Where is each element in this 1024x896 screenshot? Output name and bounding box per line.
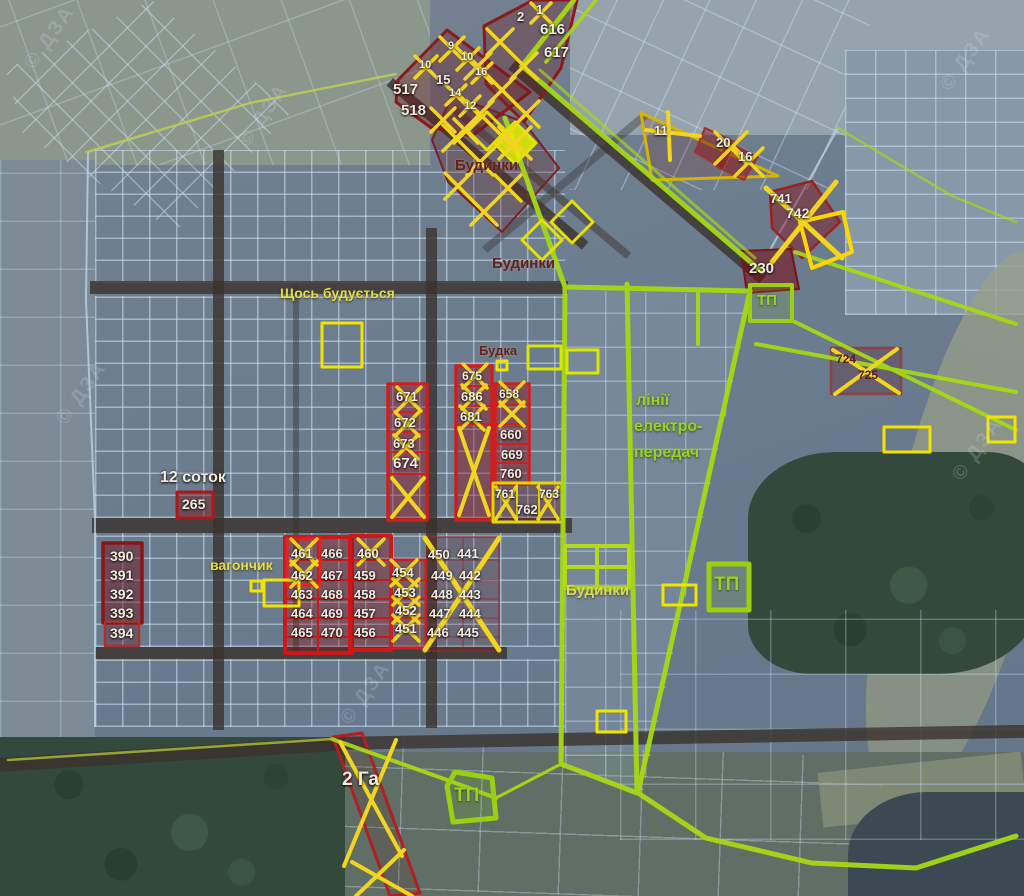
plot-number: 457 xyxy=(354,607,376,620)
plot-number: 445 xyxy=(457,626,479,639)
plot-number: 456 xyxy=(354,626,376,639)
plot-number: 10 xyxy=(461,52,473,63)
area-label-budynky-low: Будинки xyxy=(566,583,629,598)
plot-number: 449 xyxy=(431,569,453,582)
plot-number: 446 xyxy=(427,626,449,639)
plot-number: 469 xyxy=(321,607,343,620)
plot-number: 465 xyxy=(291,626,313,639)
plot-number: 461 xyxy=(291,547,313,560)
plot-number: 442 xyxy=(459,569,481,582)
plot-number: 686 xyxy=(461,390,483,403)
plot-number: 454 xyxy=(392,566,414,579)
plot-number: 760 xyxy=(500,467,522,480)
plot-number: 2 xyxy=(517,10,524,23)
plot-number: 674 xyxy=(393,456,418,471)
plot-number: 658 xyxy=(499,388,519,400)
map-canvas[interactable]: © ДЗА © ДЗА © ДЗА © ДЗА © ДЗА © ДЗА 2 1 … xyxy=(0,0,1024,896)
plot-number: 761 xyxy=(495,488,515,500)
plot-number: 725 xyxy=(858,369,878,381)
plot-number: 617 xyxy=(544,45,569,60)
plot-number: 458 xyxy=(354,588,376,601)
plot-number: 14 xyxy=(449,88,461,99)
plot-number: 265 xyxy=(182,497,205,511)
plot-number: 470 xyxy=(321,626,343,639)
plot-number: 451 xyxy=(395,622,417,635)
area-label-powerline-1: лінії xyxy=(636,393,669,409)
plot-number: 460 xyxy=(357,547,379,560)
plot-number: 462 xyxy=(291,569,313,582)
plot-number: 441 xyxy=(457,547,479,560)
plot-number: 453 xyxy=(394,586,416,599)
sold-cross-marks xyxy=(291,3,899,896)
plot-number: 742 xyxy=(786,206,809,220)
plot-number: 741 xyxy=(770,192,792,205)
plot-number: 447 xyxy=(429,607,451,620)
plot-number: 10 xyxy=(419,60,431,71)
plot-number: 391 xyxy=(110,568,133,582)
plot-number: 464 xyxy=(291,607,313,620)
area-label-budynky-top: Будинки xyxy=(455,158,518,173)
plot-number: 15 xyxy=(436,73,450,86)
area-label-powerline-2: електро- xyxy=(634,419,702,435)
tp-label-bottom: ТП xyxy=(454,786,479,805)
plot-number: 459 xyxy=(354,569,376,582)
plot-number: 660 xyxy=(500,428,522,441)
plot-number: 673 xyxy=(393,437,415,450)
plot-number: 393 xyxy=(110,606,133,620)
tp-label-mid: ТП xyxy=(714,575,739,594)
plot-number: 11 xyxy=(654,124,668,137)
plot-number: 672 xyxy=(394,416,416,429)
area-label-budka: Будка xyxy=(479,344,517,357)
plot-number: 675 xyxy=(462,370,482,382)
plot-number: 392 xyxy=(110,587,133,601)
plot-number: 1 xyxy=(536,3,543,16)
plot-number: 20 xyxy=(716,136,730,149)
plot-number: 463 xyxy=(291,588,313,601)
tp-label-top: ТП xyxy=(757,293,777,308)
plot-number: 724 xyxy=(836,353,856,365)
area-label-2ha: 2 Га xyxy=(342,770,379,789)
plot-number: 394 xyxy=(110,626,133,640)
plot-number: 444 xyxy=(459,607,481,620)
plot-number: 390 xyxy=(110,549,133,563)
plot-number: 466 xyxy=(321,547,343,560)
plot-number: 9 xyxy=(448,41,454,52)
plot-number: 450 xyxy=(428,548,450,561)
plot-number: 452 xyxy=(395,604,417,617)
area-label-construction: Щось будується xyxy=(280,286,395,300)
area-label-12-sotok: 12 соток xyxy=(160,470,226,486)
plot-number: 616 xyxy=(540,22,565,37)
plot-number: 448 xyxy=(431,588,453,601)
area-label-powerline-3: передач xyxy=(634,445,699,461)
plot-number: 12 xyxy=(464,101,476,112)
plot-number: 443 xyxy=(459,588,481,601)
plot-number: 468 xyxy=(321,588,343,601)
plot-number: 467 xyxy=(321,569,343,582)
plot-number: 16 xyxy=(738,150,752,163)
plot-number: 762 xyxy=(516,503,538,516)
plot-number: 518 xyxy=(401,103,426,118)
plot-number: 763 xyxy=(539,488,559,500)
plot-number: 671 xyxy=(396,390,418,403)
area-label-vagonchyk: вагончик xyxy=(210,558,273,572)
plot-number: 16 xyxy=(475,67,487,78)
plot-number: 669 xyxy=(501,448,523,461)
plot-number: 681 xyxy=(460,410,482,423)
area-label-budynky-mid: Будинки xyxy=(492,256,555,271)
plot-number: 517 xyxy=(393,82,418,97)
plot-number: 230 xyxy=(749,261,774,276)
